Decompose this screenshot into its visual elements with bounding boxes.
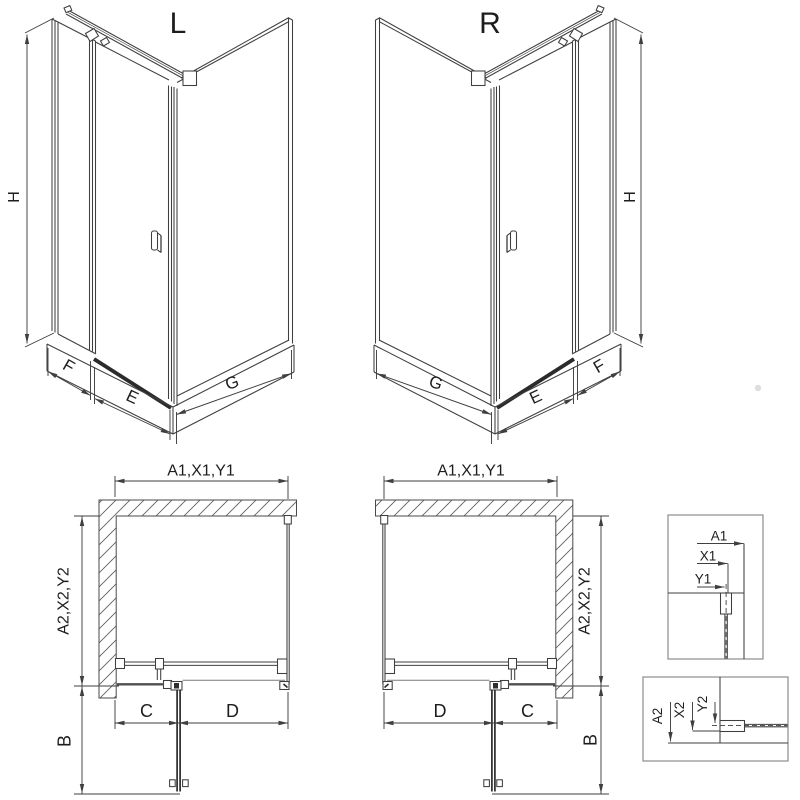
detail-y2-label: Y2 bbox=[695, 696, 710, 713]
plan-left-fixed-label: C bbox=[140, 701, 153, 721]
plan-right-linework bbox=[381, 476, 557, 792]
plan-left-width-label: A1,X1,Y1 bbox=[167, 463, 235, 480]
dim-label-height-left: H bbox=[6, 191, 23, 203]
depth-dimensions-left-plan bbox=[74, 516, 180, 794]
plan-right-depth-label: A2,X2,Y2 bbox=[577, 567, 594, 635]
right-variant-title: R bbox=[479, 7, 501, 40]
plan-right-width-label: A1,X1,Y1 bbox=[437, 463, 505, 480]
walls-hatched-left-plan bbox=[99, 500, 297, 698]
plan-right-door-label: D bbox=[434, 701, 447, 721]
plan-left-depth-label: A2,X2,Y2 bbox=[56, 567, 73, 635]
dim-label-fixed-right: F bbox=[590, 355, 608, 377]
technical-drawing-page: L H F E G R H G E F A1,X1,Y1 A2,X2,Y2 C … bbox=[0, 0, 800, 800]
left-variant-title: L bbox=[170, 7, 187, 40]
iso-left-linework bbox=[25, 6, 294, 444]
shower-enclosure-diagram: L H F E G R H G E F A1,X1,Y1 A2,X2,Y2 C … bbox=[0, 0, 800, 800]
plan-right-fixed-label: C bbox=[521, 701, 534, 721]
dim-label-height-right: H bbox=[622, 191, 639, 203]
dim-label-fixed-left: F bbox=[60, 355, 78, 377]
detail-x2-label: X2 bbox=[672, 702, 687, 719]
detail-a2-label: A2 bbox=[650, 708, 665, 725]
iso-view-left: L H F E G bbox=[6, 6, 294, 444]
dim-label-side-right: G bbox=[426, 372, 445, 394]
dim-label-side-left: G bbox=[223, 372, 242, 394]
plan-right-swing-label: B bbox=[581, 734, 601, 746]
detail-y1-label: Y1 bbox=[695, 572, 712, 587]
detail-box-depth: A2 X2 Y2 bbox=[643, 677, 788, 761]
detail-box-width: A1 X1 Y1 bbox=[668, 515, 763, 659]
plan-view-left: A1,X1,Y1 A2,X2,Y2 C D B bbox=[55, 463, 297, 795]
watermark-dot bbox=[755, 385, 761, 391]
iso-view-right: R H G E F bbox=[374, 6, 643, 444]
plan-view-right: A1,X1,Y1 A2,X2,Y2 D C B bbox=[376, 463, 610, 795]
detail-a1-label: A1 bbox=[711, 529, 728, 544]
plan-left-linework bbox=[115, 476, 291, 792]
detail-x1-label: X1 bbox=[700, 549, 717, 564]
iso-right-linework bbox=[374, 6, 643, 444]
depth-dimensions-right-plan bbox=[492, 516, 609, 794]
dim-label-door-left: E bbox=[123, 386, 141, 408]
dim-label-door-right: E bbox=[527, 386, 545, 408]
walls-hatched-right-plan bbox=[376, 500, 573, 698]
plan-left-swing-label: B bbox=[55, 735, 75, 747]
plan-left-door-label: D bbox=[226, 701, 239, 721]
